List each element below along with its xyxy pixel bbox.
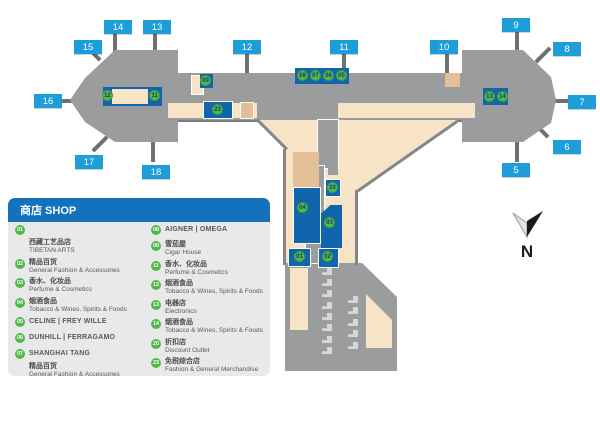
gate10-bridge [445,54,449,73]
legend-title: 商店 SHOP [20,202,76,218]
legend-item-02: 02 精品百货 General Fashion & Accessories [15,259,147,275]
legend-item-13: 13 电器店 Electronics [151,300,269,316]
shop-brand-name: SHANGHAI TANG [29,349,90,359]
corridor-room-tan-right [445,73,460,87]
legend-item-20: 20 折扣店 Discount Outlet [151,339,269,355]
legend-item-14: 14 烟酒食品 Tobacco & Wines, Spirits & Foods [151,319,269,335]
legend-badge-11: 11 [151,261,161,271]
shop-marker-12: 12 [102,90,113,101]
shop-name-en: Discount Outlet [165,347,209,355]
shop-marker-02: 02 [322,251,333,262]
compass-n-label: N [521,242,533,261]
gate-label-14: 14 [104,20,132,34]
shop-marker-23: 23 [212,104,223,115]
gate-label-6: 6 [553,140,581,154]
legend-badge-06: 06 [15,333,25,343]
shop-name-en: Tobacco & Wines, Spirits & Foods [165,327,263,335]
shop-marker-01: 01 [294,251,305,262]
stem-right-wall [355,190,358,265]
shop-name-zh: 香水、化妆品 [29,278,92,286]
gate12-bridge [245,54,249,73]
legend-badge-09: 09 [151,241,161,251]
legend-item-08: 08 AIGNER | OMEGA [151,225,269,235]
gate5-bridge [515,142,519,162]
legend-column-left: 01 西藏工艺品店 TIBETAN ARTS 02 精品百货 General F… [15,225,147,383]
shop-name-zh: 电器店 [165,300,197,308]
shop-name-zh: 烟酒食品 [29,298,127,306]
shop-name-en: TIBETAN ARTS [29,247,147,255]
gate-label-5: 5 [502,163,530,177]
legend-header: 商店 SHOP [8,198,270,222]
legend-item-23: 23 免税综合店 Fashion & General Merchandise [151,358,269,374]
legend-badge-20: 20 [151,339,161,349]
shop-marker-20: 20 [327,182,338,193]
shop04-block [294,188,320,243]
shop-name-zh: 烟酒食品 [165,280,263,288]
airport-terminal-shop-map: 09 08 07 06 05 12 11 13 14 23 20 04 03 0… [0,0,600,432]
shop-name-en: Perfume & Cosmetics [165,269,228,277]
gate-label-16: 16 [34,94,62,108]
legend-badge-08: 08 [151,225,161,235]
gate-label-8: 8 [553,42,581,56]
shops11-12-inner [112,89,148,104]
shop-brand-name: AIGNER | OMEGA [165,225,227,235]
legend-badge-04: 04 [15,298,25,308]
legend-item-01: 01 [15,225,147,235]
stem-room-tan [293,152,319,187]
stem-corridor-upper [318,120,338,168]
gate-label-13: 13 [143,20,171,34]
legend-column-right: 08 AIGNER | OMEGA 09 雪茄屋 Cigar House 11 … [151,225,269,378]
legend-badge-23: 23 [151,358,161,368]
legend-item-03: 03 香水、化妆品 Perfume & Cosmetics [15,278,147,294]
gate-label-12: 12 [233,40,261,54]
legend-item-01-text: 西藏工艺品店 TIBETAN ARTS [29,239,147,255]
shop-name-zh: 精品百货 [29,259,120,267]
legend-badge-12: 12 [151,280,161,290]
gate-label-10: 10 [430,40,458,54]
gate18-bridge [151,142,155,162]
legend-item-07-subtext: 精品百货 General Fashion & Accessories [29,363,147,379]
shop-marker-11: 11 [149,90,160,101]
stem-left-wall [283,149,286,265]
shop-name-zh: 烟酒食品 [165,319,263,327]
corridor-shops-right [338,103,475,118]
shop-name-zh: 西藏工艺品店 [29,239,147,247]
shop-name-en: Electronics [165,308,197,316]
legend-badge-14: 14 [151,319,161,329]
gate-label-17: 17 [75,155,103,169]
shop-brand-name: DUNHILL | FERRAGAMO [29,333,115,343]
north-arrow-icon: N [505,203,550,261]
shop-name-en: General Fashion & Accessories [29,371,147,379]
stem-elevator-block [328,162,338,175]
shop-marker-04: 04 [297,202,308,213]
legend-item-05: 05 CELINE | FREY WILLE [15,317,147,327]
legend-item-06: 06 DUNHILL | FERRAGAMO [15,333,147,343]
legend-item-12: 12 烟酒食品 Tobacco & Wines, Spirits & Foods [151,280,269,296]
shop-name-zh: 折扣店 [165,339,209,347]
right-pier [462,50,557,142]
legend-badge-13: 13 [151,300,161,310]
legend-badge-03: 03 [15,278,25,288]
legend-badge-07: 07 [15,349,25,359]
legend-item-11: 11 香水、化妆品 Perfume & Cosmetics [151,261,269,277]
shop-name-zh: 香水、化妆品 [165,261,228,269]
shop-legend-panel: 商店 SHOP 01 西藏工艺品店 TIBETAN ARTS 02 精品百货 G… [8,198,270,376]
shop-marker-05: 05 [336,70,347,81]
legend-badge-02: 02 [15,259,25,269]
gate8-bridge [535,47,552,64]
shop-brand-name: CELINE | FREY WILLE [29,317,107,327]
gate-label-9: 9 [502,18,530,32]
shop-name-zh: 精品百货 [29,363,147,371]
shop-name-en: Fashion & General Merchandise [165,366,258,374]
shop-marker-07: 07 [310,70,321,81]
shop-name-en: Tobacco & Wines, Spirits & Foods [29,306,127,314]
gate17-bridge [92,136,109,153]
legend-badge-01: 01 [15,225,25,235]
shop-marker-08: 08 [297,70,308,81]
gate-label-7: 7 [568,95,596,109]
gate-label-15: 15 [74,40,102,54]
shop-name-en: Cigar House [165,249,201,257]
legend-item-07: 07 SHANGHAI TANG [15,349,147,359]
checkin-hall-floor-left [290,268,308,330]
shop-marker-14: 14 [497,91,508,102]
gate9-bridge [515,32,519,50]
shop-name-zh: 雪茄屋 [165,241,201,249]
legend-item-09: 09 雪茄屋 Cigar House [151,241,269,257]
shop-name-en: General Fashion & Accessories [29,267,120,275]
shop-marker-13: 13 [484,91,495,102]
shop-marker-06: 06 [323,70,334,81]
gate-label-11: 11 [330,40,358,54]
corridor-room-tan-left [241,103,253,118]
shop-name-zh: 免税综合店 [165,358,258,366]
legend-badge-05: 05 [15,317,25,327]
shop-marker-09: 09 [200,75,211,86]
shop-name-en: Tobacco & Wines, Spirits & Foods [165,288,263,296]
gate-label-18: 18 [142,165,170,179]
legend-item-04: 04 烟酒食品 Tobacco & Wines, Spirits & Foods [15,298,147,314]
shop-marker-03: 03 [324,217,335,228]
shop-name-en: Perfume & Cosmetics [29,286,92,294]
